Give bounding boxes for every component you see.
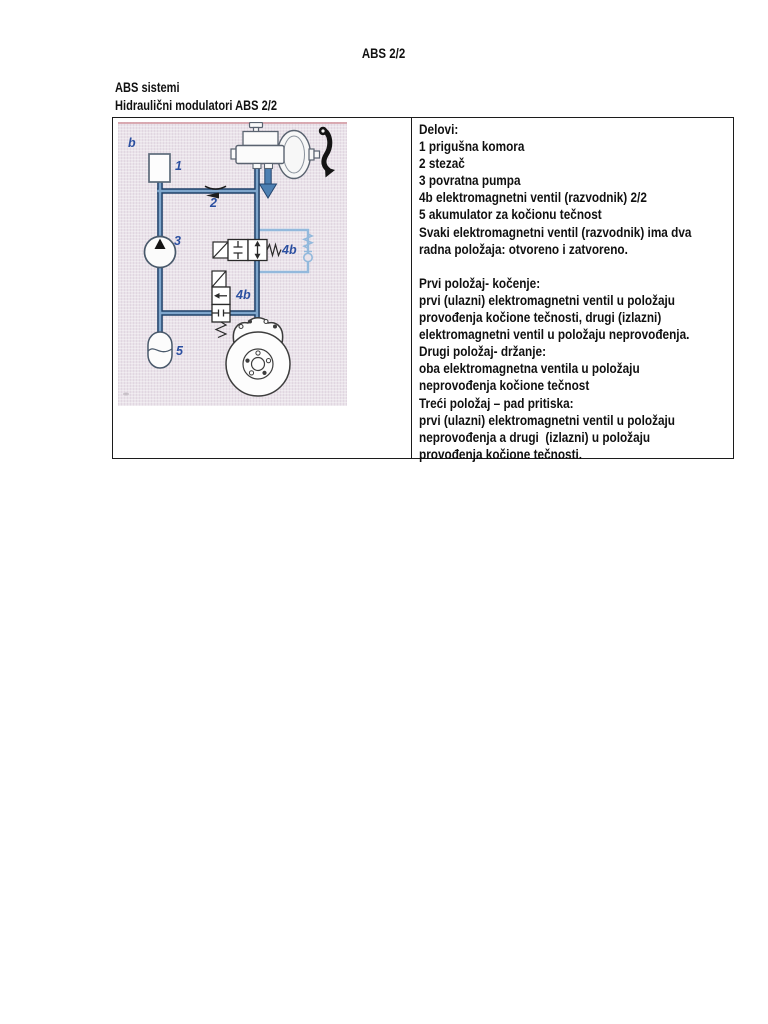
- solenoid-valve-lower: [212, 271, 230, 338]
- info-line: 3 povratna pumpa: [419, 172, 691, 189]
- diagram-cell: b 1 2 3 4b 4b 5: [113, 118, 412, 458]
- info-line: Prvi položaj- kočenje:: [419, 275, 691, 292]
- label-1-damping-chamber: 1: [175, 159, 182, 173]
- label-4b-lower-valve: 4b: [235, 288, 251, 302]
- info-line: Drugi položaj- držanje:: [419, 343, 691, 360]
- section-headings: ABS sistemi Hidraulični modulatori ABS 2…: [115, 79, 313, 115]
- label-2-clamp: 2: [209, 196, 217, 210]
- brake-disc: [226, 332, 290, 396]
- info-line: Treći položaj – pad pritiska:: [419, 395, 691, 412]
- info-line: 1 prigušna komora: [419, 138, 691, 155]
- label-3-return-pump: 3: [174, 234, 181, 248]
- info-line: Delovi:: [419, 121, 691, 138]
- abs-hydraulic-diagram: b 1 2 3 4b 4b 5: [118, 122, 347, 406]
- master-cylinder: [231, 123, 284, 169]
- info-line: 5 akumulator za kočionu tečnost: [419, 206, 691, 223]
- info-line: elektromagnetni ventil u položaju neprov…: [419, 326, 691, 343]
- document-page: ABS 2/2 ABS sistemi Hidraulični modulato…: [0, 0, 768, 1024]
- label-5-accumulator: 5: [176, 344, 184, 358]
- damping-chamber-symbol: [149, 154, 170, 182]
- info-line: radna položaja: otvoreno i zatvoreno.: [419, 241, 691, 258]
- solenoid-valve-upper: [213, 240, 281, 261]
- scan-smudge: [123, 393, 129, 396]
- flow-arrow: [260, 166, 277, 198]
- info-line: [419, 258, 691, 275]
- info-line: neprovođenja kočione tečnost: [419, 377, 691, 394]
- info-line: oba elektromagnetna ventila u položaju: [419, 360, 691, 377]
- info-line: prvi (ulazni) elektromagnetni ventil u p…: [419, 292, 691, 309]
- info-line: Svaki elektromagnetni ventil (razvodnik)…: [419, 224, 691, 241]
- hydraulic-diagram-scan: b 1 2 3 4b 4b 5: [118, 122, 347, 406]
- info-line: provođenja kočione tečnosti.: [419, 446, 691, 463]
- info-line: 2 stezač: [419, 155, 691, 172]
- return-pump-symbol: [145, 237, 176, 268]
- heading-abs-sistemi: ABS sistemi: [115, 79, 277, 97]
- info-line: neprovođenja a drugi (izlazni) u položaj…: [419, 429, 691, 446]
- label-b: b: [128, 136, 136, 150]
- content-table: b 1 2 3 4b 4b 5 Delovi: 1 prigušna komor…: [112, 117, 734, 459]
- info-line: prvi (ulazni) elektromagnetni ventil u p…: [419, 412, 691, 429]
- info-line: 4b elektromagnetni ventil (razvodnik) 2/…: [419, 189, 691, 206]
- label-4b-upper-valve: 4b: [281, 243, 297, 257]
- info-line: provođenja kočione tečnosti, drugi (izla…: [419, 309, 691, 326]
- brake-pedal-icon: [319, 127, 335, 178]
- heading-hidraulicni-modulatori: Hidraulični modulatori ABS 2/2: [115, 97, 277, 115]
- page-title: ABS 2/2: [0, 46, 768, 61]
- accumulator-symbol: [148, 332, 172, 368]
- description-cell: Delovi: 1 prigušna komora 2 stezač 3 pov…: [412, 118, 733, 458]
